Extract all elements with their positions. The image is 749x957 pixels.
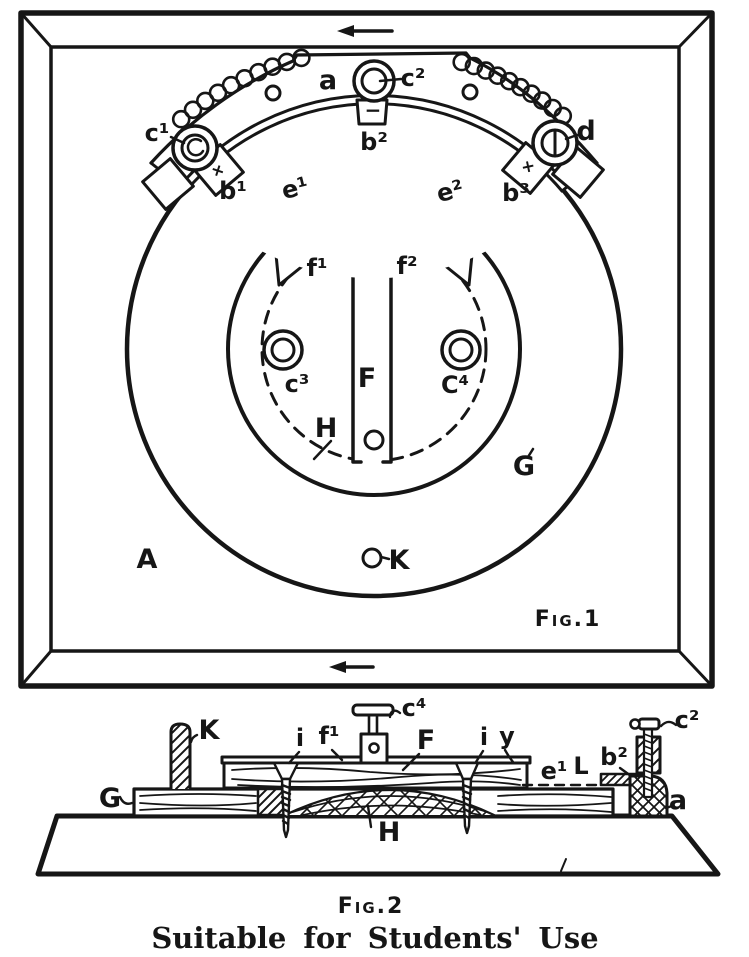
terminal-c1 <box>171 126 217 170</box>
fig2-label-L: L <box>573 752 588 780</box>
fig1-label-f2: f² <box>397 252 418 280</box>
fig1-label-c4: C⁴ <box>441 371 469 399</box>
page-caption: Suitable for Students' Use <box>151 921 598 955</box>
fig2-label-b2: b² <box>600 743 628 771</box>
bottom-arrow-icon <box>329 661 373 673</box>
fig1-label-f1: f¹ <box>307 254 328 282</box>
figure-2: K G i f¹ c⁴ F i y e¹ L b² c² a H Fig.2 S… <box>38 694 718 955</box>
fig2-label-i1: i <box>296 724 304 752</box>
fig2-label-c2: c² <box>675 706 700 734</box>
fig1-label-A: A <box>137 544 158 575</box>
fig2-label-F: F <box>417 725 435 756</box>
scanned-figure-page: a c² b² − c¹ b¹ + d b³ + e¹ e² f¹ f² F c… <box>0 0 749 957</box>
fig1-label-b2: b² <box>360 128 388 156</box>
fig1-caption: Fig.1 <box>535 607 602 632</box>
fig1-minus-mark: − <box>365 98 382 122</box>
fig1-label-G: G <box>513 451 535 482</box>
terminal-c4-plan <box>442 331 480 369</box>
fig1-label-K: K <box>389 545 411 576</box>
fig1-label-b3: b³ <box>502 179 530 207</box>
fig2-label-K: K <box>199 715 221 746</box>
top-arrow-icon <box>337 25 392 37</box>
k-hole <box>363 549 381 567</box>
fig2-label-f1: f¹ <box>319 722 340 750</box>
fig1-label-c1: c¹ <box>145 119 170 147</box>
fig1-label-b1: b¹ <box>219 177 247 205</box>
fig2-label-y: y <box>499 722 515 750</box>
fig2-label-i2: i <box>480 723 488 751</box>
fig2-label-G: G <box>99 783 121 814</box>
terminal-d <box>533 121 577 165</box>
fig2-caption: Fig.2 <box>338 894 405 919</box>
fig2-label-c4: c⁴ <box>402 694 427 722</box>
fig1-label-F: F <box>358 363 376 394</box>
figure-1: a c² b² − c¹ b¹ + d b³ + e¹ e² f¹ f² F c… <box>21 13 712 686</box>
fig2-label-H: H <box>378 817 401 848</box>
fig1-label-H: H <box>315 413 338 444</box>
fig2-label-e1: e¹ <box>541 757 568 785</box>
terminal-c3 <box>264 331 302 369</box>
fig1-label-d: d <box>576 116 595 147</box>
fig1-label-a: a <box>319 65 337 96</box>
fig1-label-c2: c² <box>401 64 426 92</box>
diagram-canvas: a c² b² − c¹ b¹ + d b³ + e¹ e² f¹ f² F c… <box>0 0 749 957</box>
clamp-c4 <box>353 705 393 763</box>
fig1-label-c3: c³ <box>285 370 310 398</box>
fig2-label-a: a <box>669 785 687 816</box>
